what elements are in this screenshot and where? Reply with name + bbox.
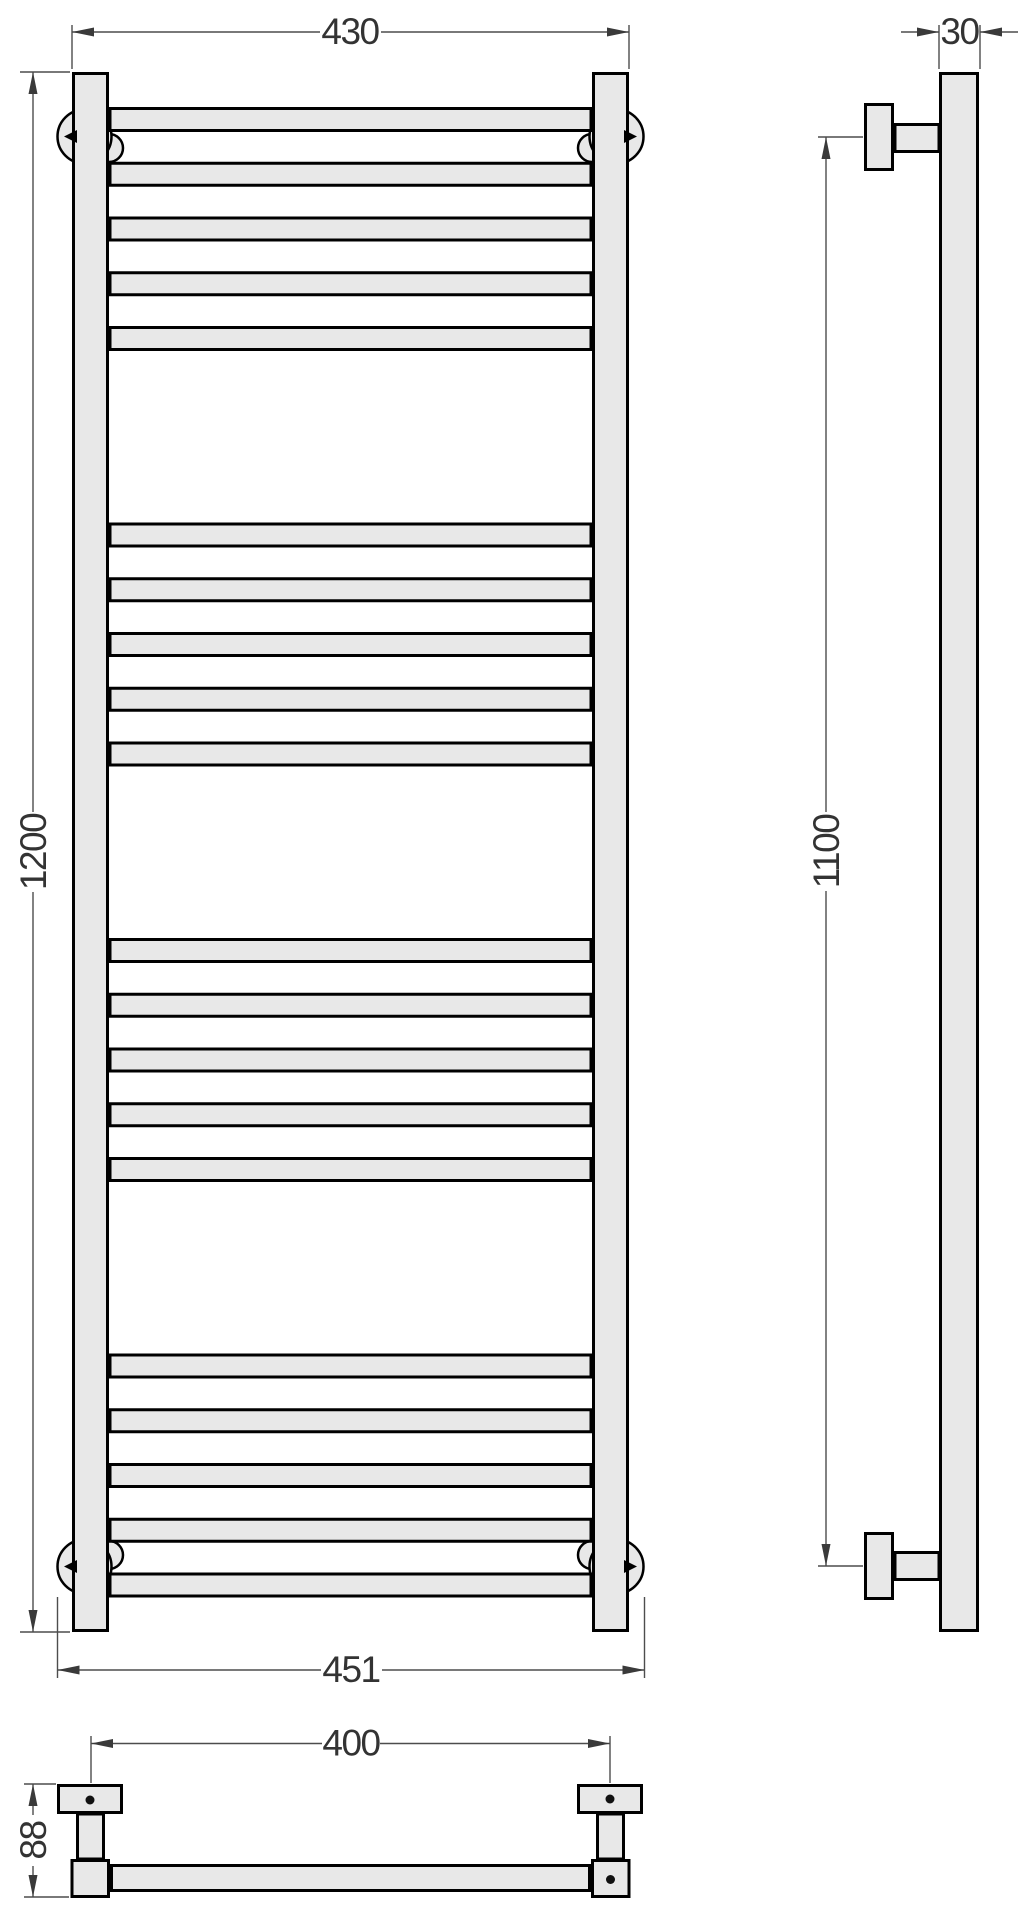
screw-hole-left-plate-icon <box>86 1796 95 1805</box>
left-post <box>74 74 108 1631</box>
rung <box>110 994 591 1016</box>
side-bracket-stem-top <box>895 125 939 152</box>
rung <box>110 1519 591 1541</box>
rung <box>110 1104 591 1126</box>
rung <box>110 1574 591 1596</box>
dim-label-side-mount-spacing: 1100 <box>806 814 847 888</box>
rung <box>110 1410 591 1432</box>
rung <box>110 1355 591 1377</box>
right-post <box>594 74 628 1631</box>
rung <box>110 743 591 765</box>
rung <box>110 109 591 131</box>
plan-rail-bar <box>112 1866 590 1891</box>
side-bracket-plate-bottom <box>866 1534 893 1599</box>
dim-1200: 1200 <box>13 72 70 1632</box>
plan-post-end-left <box>72 1861 109 1897</box>
side-view: 30 1100 <box>806 11 1018 1631</box>
dim-30: 30 <box>901 11 1018 69</box>
side-rail-bar <box>941 74 978 1631</box>
rung <box>110 524 591 546</box>
bottom-view: 400 88 <box>13 1723 642 1898</box>
rung <box>110 273 591 295</box>
drawing-canvas: 430 1200 451 <box>0 0 1033 1920</box>
dim-label-front-width-overall: 451 <box>322 1649 379 1690</box>
side-bracket-plate-top <box>866 105 893 170</box>
rung <box>110 1159 591 1181</box>
rung <box>110 579 591 601</box>
rung <box>110 328 591 350</box>
screw-hole-right-plate-icon <box>606 1795 615 1804</box>
dim-451: 451 <box>58 1597 645 1690</box>
dim-430: 430 <box>72 11 629 69</box>
dim-label-front-height: 1200 <box>13 813 54 890</box>
dim-400: 400 <box>91 1723 610 1784</box>
rung <box>110 1465 591 1487</box>
rung <box>110 688 591 710</box>
screw-hole-right-post-icon <box>606 1875 615 1884</box>
plan-bracket-stem-left <box>78 1814 104 1859</box>
dim-label-bottom-mount-spacing: 400 <box>322 1723 380 1764</box>
plan-bracket-stem-right <box>598 1814 624 1859</box>
rung <box>110 163 591 185</box>
rung-group <box>110 109 591 1597</box>
dim-1100: 1100 <box>806 137 863 1566</box>
rung <box>110 940 591 962</box>
towel-rail-drawing: 430 1200 451 <box>0 0 1033 1920</box>
side-bracket-stem-bottom <box>895 1553 939 1580</box>
rung <box>110 634 591 656</box>
front-view: 430 1200 451 <box>13 11 645 1690</box>
dim-label-bottom-bracket-depth: 88 <box>13 1821 54 1859</box>
dim-label-side-depth: 30 <box>940 11 979 52</box>
dim-label-front-width-top: 430 <box>321 11 379 52</box>
rung <box>110 1049 591 1071</box>
rung <box>110 218 591 240</box>
